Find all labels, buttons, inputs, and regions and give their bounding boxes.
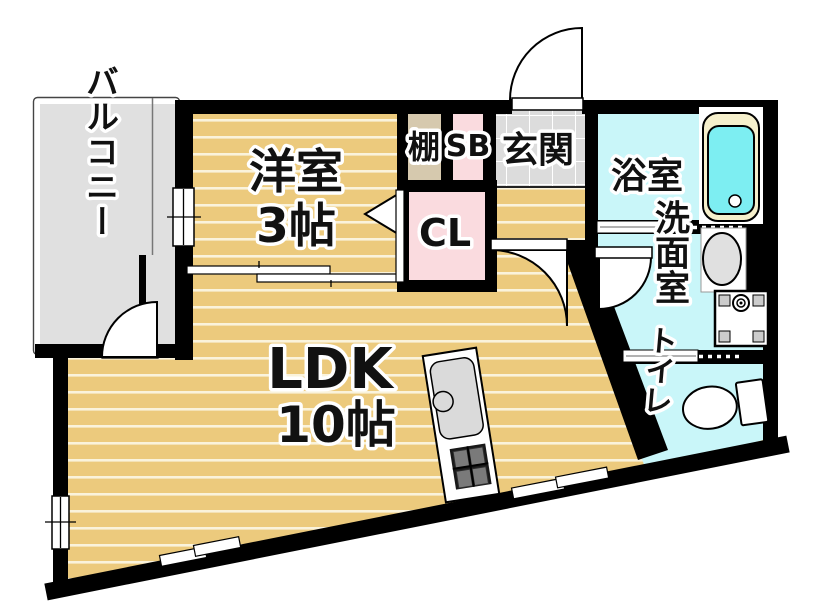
washbasin (701, 228, 746, 292)
entrance-door-arc (510, 28, 582, 100)
label-ldk-size: 10帖 (276, 396, 396, 454)
label-shelf: 棚 (408, 128, 440, 166)
floor-plan: バルコニー 洋室 3帖 LDK 10帖 棚 SB 玄関 浴室 CL 洗面室 トイ… (0, 0, 817, 603)
label-ldk: LDK (267, 337, 395, 402)
kitchen-stove (450, 443, 492, 489)
ldk-door-leaf (491, 239, 567, 250)
label-washroom: 洗面室 (649, 199, 690, 304)
wall-hall-nub (565, 240, 598, 264)
wall-top-left (175, 100, 512, 114)
western-ldk-sliding-door-panel2 (257, 274, 400, 282)
label-entrance: 玄関 (502, 130, 574, 171)
label-shoebox: SB (446, 129, 490, 164)
label-bathroom: 浴室 (611, 156, 683, 197)
washroom-door-leaf (595, 247, 652, 258)
bathtub (699, 107, 763, 224)
bathtub-drain (729, 195, 741, 207)
wall-shelf-left (397, 112, 408, 190)
entrance-door-sill (512, 98, 583, 110)
label-western-room: 洋室 (249, 145, 343, 200)
washing-machine (715, 291, 768, 346)
label-western-room-size: 3帖 (256, 199, 336, 254)
closet-door-panel (396, 190, 404, 282)
label-closet: CL (419, 211, 471, 255)
wall-left (53, 344, 68, 587)
wall-basin-side (745, 224, 765, 296)
label-balcony: バルコニー (81, 65, 120, 240)
